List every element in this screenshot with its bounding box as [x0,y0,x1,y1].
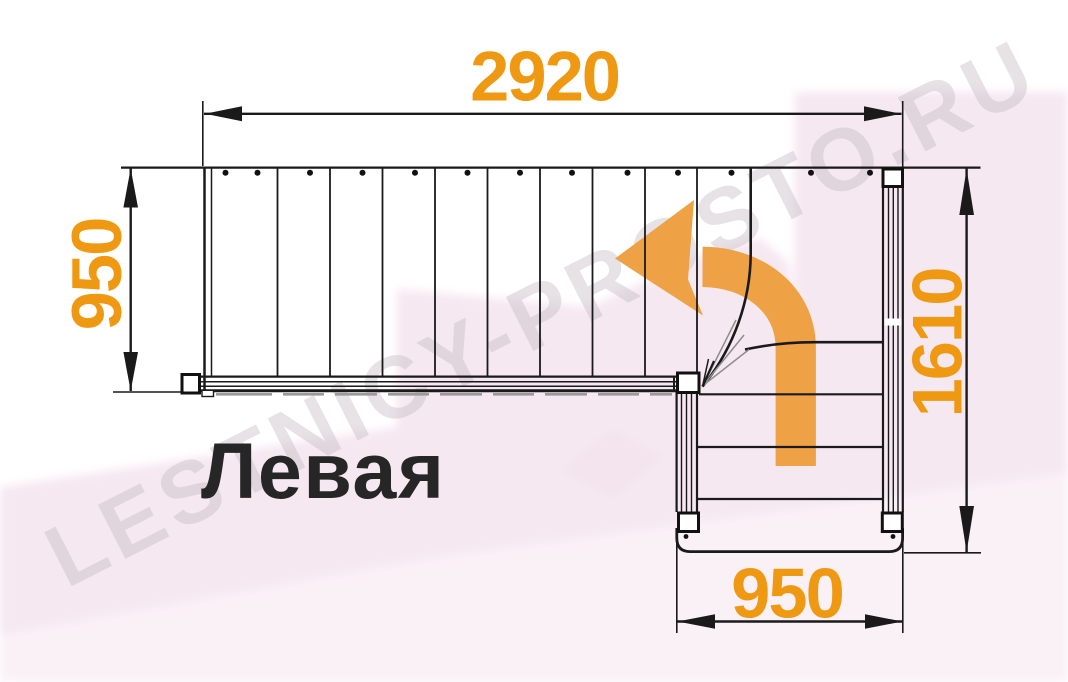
svg-text:2920: 2920 [470,37,619,116]
svg-text:1610: 1610 [898,269,977,418]
svg-text:950: 950 [731,553,843,632]
svg-text:950: 950 [57,219,136,331]
